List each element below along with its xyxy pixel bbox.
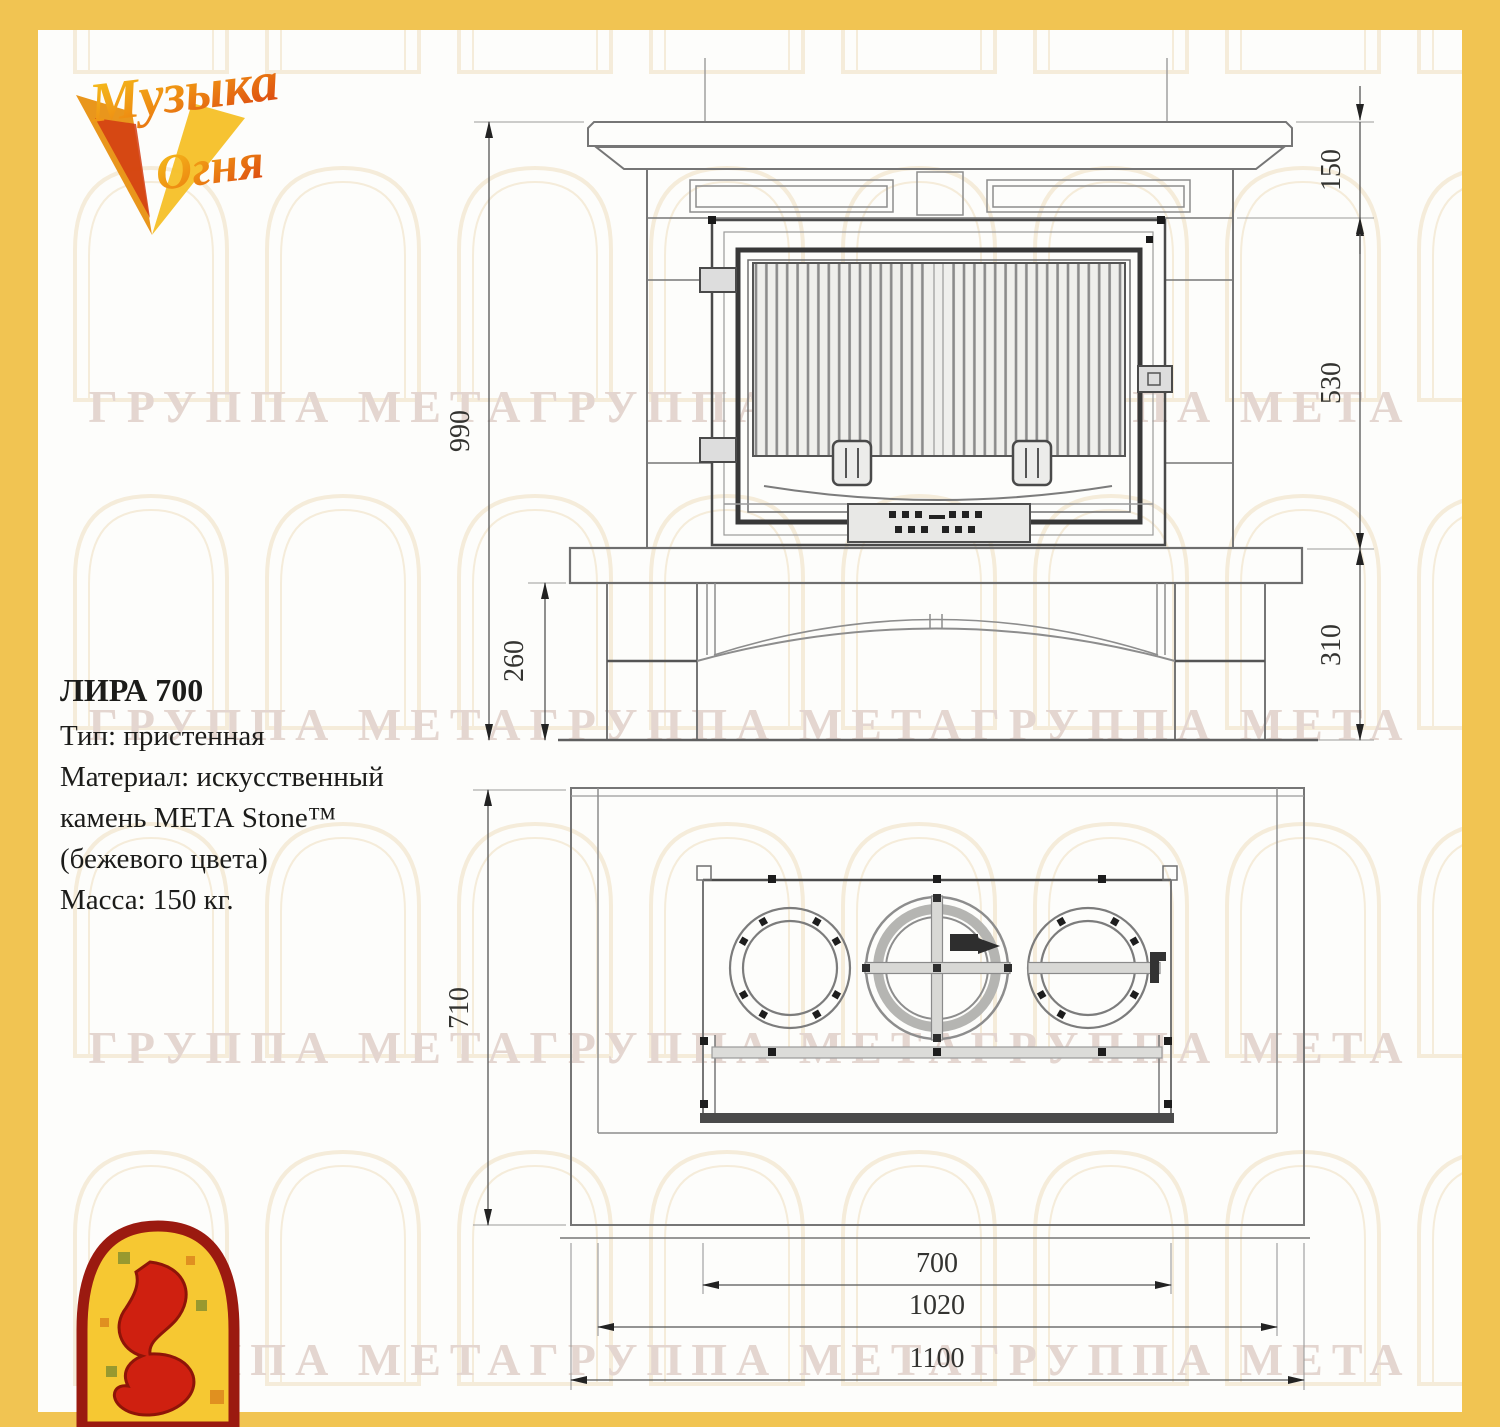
dim-label-plinth-height: 260	[499, 640, 530, 682]
dim-label-base-height: 310	[1316, 624, 1347, 666]
spec-sheet: ГРУППА МЕТАГРУППА МЕТАГРУППА МЕТА ГРУППА…	[0, 0, 1500, 1427]
dim-label-total-width: 1100	[910, 1343, 965, 1374]
spec-line: Материал: искусственный	[60, 761, 384, 793]
spec-line: Тип: пристенная	[60, 720, 265, 752]
watermark-band: ГРУППА МЕТАГРУППА МЕТАГРУППА МЕТА	[89, 381, 1412, 432]
dim-label-inner-width: 1020	[909, 1290, 965, 1321]
spec-line: Масса: 150 кг.	[60, 884, 234, 916]
dim-label-shelf-height: 150	[1316, 149, 1347, 191]
door-latch	[833, 441, 871, 485]
dim-label-total-height: 990	[445, 410, 476, 452]
spec-line: (бежевого цвета)	[60, 843, 268, 875]
door-handle	[1138, 366, 1172, 392]
dim-label-depth: 710	[444, 987, 475, 1029]
dim-label-firebox-height: 530	[1316, 362, 1347, 404]
vent-strip	[848, 504, 1030, 542]
spec-line: камень МЕТА Stone™	[60, 802, 336, 834]
door-hinge	[700, 438, 736, 462]
product-title: ЛИРА 700	[60, 672, 203, 708]
arch-logo	[82, 1226, 234, 1427]
door-hinge	[700, 268, 736, 292]
dim-label-firebox-width: 700	[916, 1248, 958, 1279]
door-latch	[1013, 441, 1051, 485]
watermark-band: ГРУППА МЕТАГРУППА МЕТАГРУППА МЕТА	[89, 1334, 1412, 1385]
watermark-band: ГРУППА МЕТАГРУППА МЕТАГРУППА МЕТА	[89, 699, 1412, 750]
